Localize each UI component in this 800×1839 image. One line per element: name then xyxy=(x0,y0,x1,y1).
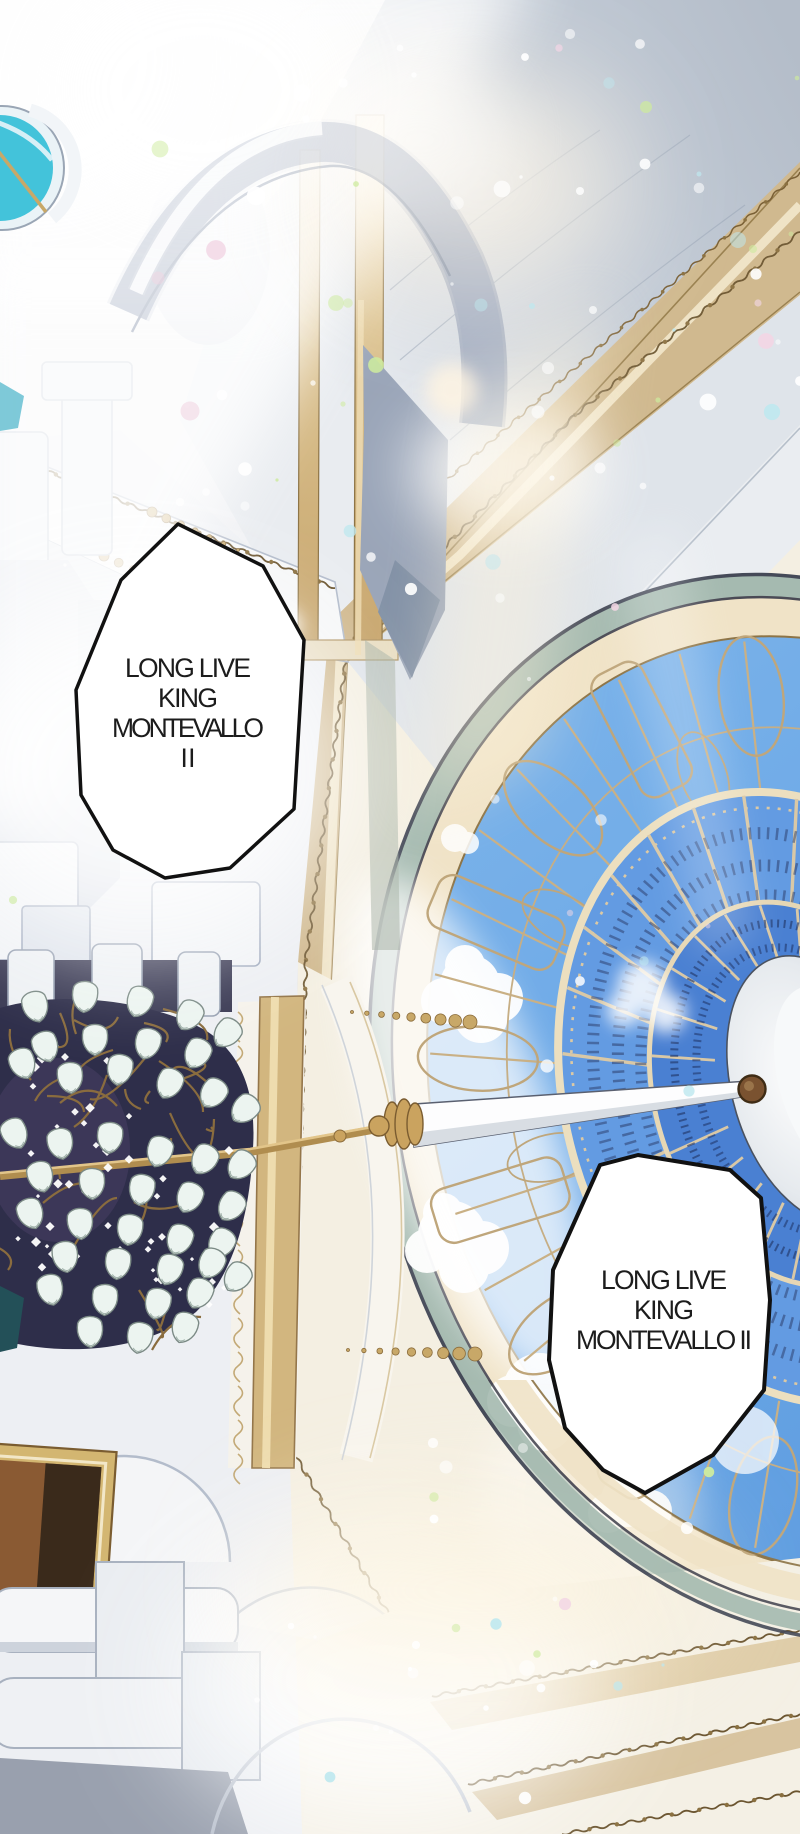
svg-text:MONTEVALLO: MONTEVALLO xyxy=(112,713,264,743)
svg-text:MONTEVALLO II: MONTEVALLO II xyxy=(576,1325,752,1355)
svg-text:KING: KING xyxy=(634,1295,694,1325)
svg-text:LONG LIVE: LONG LIVE xyxy=(601,1265,727,1295)
svg-text:KING: KING xyxy=(158,683,218,713)
svg-text:LONG LIVE: LONG LIVE xyxy=(125,653,251,683)
svg-text:II: II xyxy=(181,743,196,773)
